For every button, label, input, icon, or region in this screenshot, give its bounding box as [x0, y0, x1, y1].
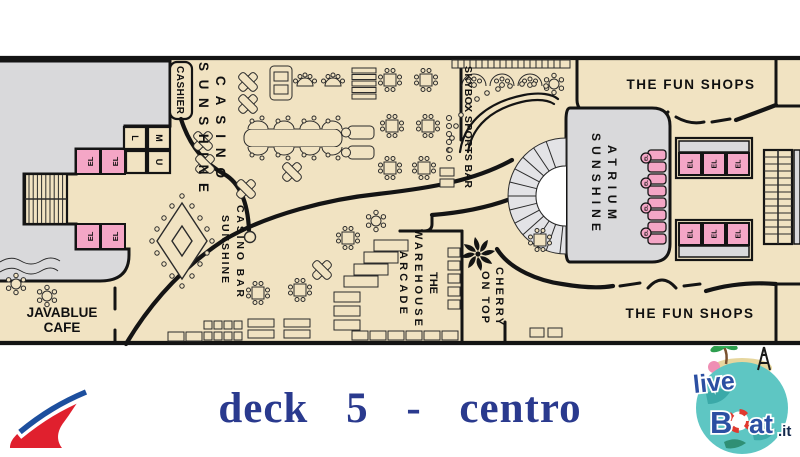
cashier-label: CASHIER	[174, 66, 185, 115]
cherry-label-line2: ON TOP	[479, 271, 491, 323]
elevator-bank-lower: EL EL EL	[676, 220, 752, 260]
elevator-bank-upper: EL EL EL	[676, 138, 752, 178]
screenshot-stage: EL EL EL EL L M U CASHIER	[0, 0, 800, 457]
carnival-logo	[6, 388, 111, 452]
skybox-label: SKYBOX SPORTS BAR	[462, 66, 474, 188]
el-label: EL	[711, 159, 718, 169]
el-label: EL	[687, 229, 694, 239]
stair-letter-u: U	[154, 159, 164, 166]
javablue-label-line1: JAVABLUE	[27, 305, 98, 320]
liveboat-at-text: at	[749, 409, 773, 439]
el-label: EL	[644, 155, 649, 161]
el-label: EL	[644, 230, 649, 236]
liveboat-b-text: B	[710, 405, 732, 440]
casino-bar-label-line2: CASINO BAR	[234, 205, 246, 297]
el-label: EL	[644, 180, 649, 186]
javablue-label-line2: CAFE	[44, 320, 81, 335]
fun-shops-bottom-label: THE FUN SHOPS	[625, 306, 754, 321]
stair-letter-boxes: L M U	[124, 127, 170, 173]
el-label: EL	[735, 229, 742, 239]
midship-stairs-right	[764, 150, 800, 244]
el-label: EL	[111, 156, 120, 166]
el-label: EL	[86, 156, 95, 166]
elevator-pair-lower-left: EL EL	[76, 224, 125, 249]
el-label: EL	[711, 229, 718, 239]
liveboat-live-text: live	[692, 367, 736, 399]
stair-letter-l: L	[130, 135, 140, 141]
casino-bar-label-line1: SUNSHINE	[219, 215, 231, 283]
el-label: EL	[644, 205, 649, 211]
midship-stairs-left	[25, 174, 67, 224]
liveboat-logo: live B at .it	[684, 346, 800, 457]
el-label: EL	[735, 159, 742, 169]
el-label: EL	[111, 231, 120, 241]
el-label: EL	[687, 159, 694, 169]
cashier-booth: CASHIER	[170, 62, 192, 119]
liveboat-it-text: .it	[778, 423, 791, 440]
elevator-pair-upper-left: EL EL	[76, 149, 125, 174]
el-label: EL	[86, 231, 95, 241]
fun-shops-top-label: THE FUN SHOPS	[626, 77, 755, 92]
stair-letter-m: M	[154, 134, 164, 142]
warehouse-label-line1: THE	[427, 272, 439, 294]
warehouse-label-line2: WAREHOUSE	[412, 229, 424, 326]
deck-title: deck 5 - centro	[0, 384, 800, 433]
